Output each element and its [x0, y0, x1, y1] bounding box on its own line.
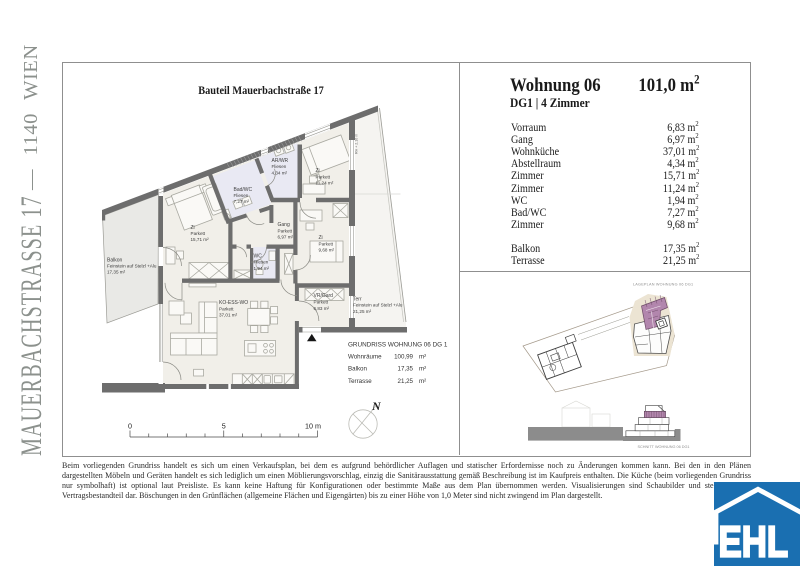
svg-text:10 m: 10 m	[305, 422, 321, 431]
svg-text:37,01 m²: 37,01 m²	[219, 313, 238, 318]
svg-text:KO-ESS-WO: KO-ESS-WO	[219, 300, 248, 306]
svg-text:Parkett: Parkett	[219, 307, 234, 312]
svg-text:GRUNDRISS WOHNUNG 06 DG 1: GRUNDRISS WOHNUNG 06 DG 1	[348, 341, 448, 348]
svg-text:Parkett: Parkett	[314, 300, 329, 305]
svg-text:m²: m²	[419, 353, 426, 360]
svg-text:4,34 m²: 4,34 m²	[272, 171, 288, 176]
svg-text:m²: m²	[419, 378, 426, 385]
svg-text:VR/Gard: VR/Gard	[314, 293, 334, 299]
svg-text:Parkett: Parkett	[278, 229, 293, 234]
svg-text:Parkett: Parkett	[319, 242, 334, 247]
svg-text:Feinstein auf Stelzl +Alu: Feinstein auf Stelzl +Alu	[353, 303, 403, 308]
svg-text:RH + 2,10 m: RH + 2,10 m	[355, 134, 359, 154]
svg-text:Zi: Zi	[319, 235, 323, 241]
svg-text:Fliesen: Fliesen	[254, 260, 269, 265]
svg-text:m²: m²	[419, 366, 426, 373]
svg-text:Feinstein auf Stelzl +Alu: Feinstein auf Stelzl +Alu	[107, 264, 157, 269]
svg-text:N: N	[371, 399, 382, 413]
svg-text:Wohnräume: Wohnräume	[348, 353, 382, 360]
svg-text:11,24 m²: 11,24 m²	[316, 181, 334, 186]
svg-text:Balkon: Balkon	[348, 366, 367, 373]
svg-text:17,35: 17,35	[398, 366, 414, 373]
svg-text:Gang: Gang	[278, 222, 290, 228]
svg-text:EHL: EHL	[719, 518, 789, 566]
svg-text:17,35 m²: 17,35 m²	[107, 270, 126, 275]
svg-text:21,25 m²: 21,25 m²	[353, 309, 372, 314]
svg-text:7,27 m²: 7,27 m²	[234, 199, 250, 204]
svg-text:LAGEPLAN WOHNUNG 06 DG1: LAGEPLAN WOHNUNG 06 DG1	[633, 283, 693, 287]
svg-text:0: 0	[128, 422, 132, 431]
svg-text:6,83 m²: 6,83 m²	[314, 306, 330, 311]
svg-text:Zi: Zi	[316, 168, 320, 174]
svg-text:Parkett: Parkett	[316, 175, 331, 180]
svg-text:Fliesen: Fliesen	[272, 164, 287, 169]
svg-text:5: 5	[222, 422, 226, 431]
svg-text:21,25: 21,25	[398, 378, 414, 385]
svg-text:9,68 m²: 9,68 m²	[319, 248, 335, 253]
svg-text:SCHNITT WOHNUNG 06 DG1: SCHNITT WOHNUNG 06 DG1	[638, 445, 690, 449]
svg-text:1,94 m²: 1,94 m²	[254, 266, 270, 271]
svg-text:15,71 m²: 15,71 m²	[191, 237, 210, 242]
svg-text:6,97 m²: 6,97 m²	[278, 235, 294, 240]
svg-text:Fliesen: Fliesen	[234, 193, 249, 198]
svg-text:100,99: 100,99	[394, 353, 413, 360]
svg-text:Parkett: Parkett	[191, 231, 206, 236]
svg-text:Terrasse: Terrasse	[348, 378, 372, 385]
